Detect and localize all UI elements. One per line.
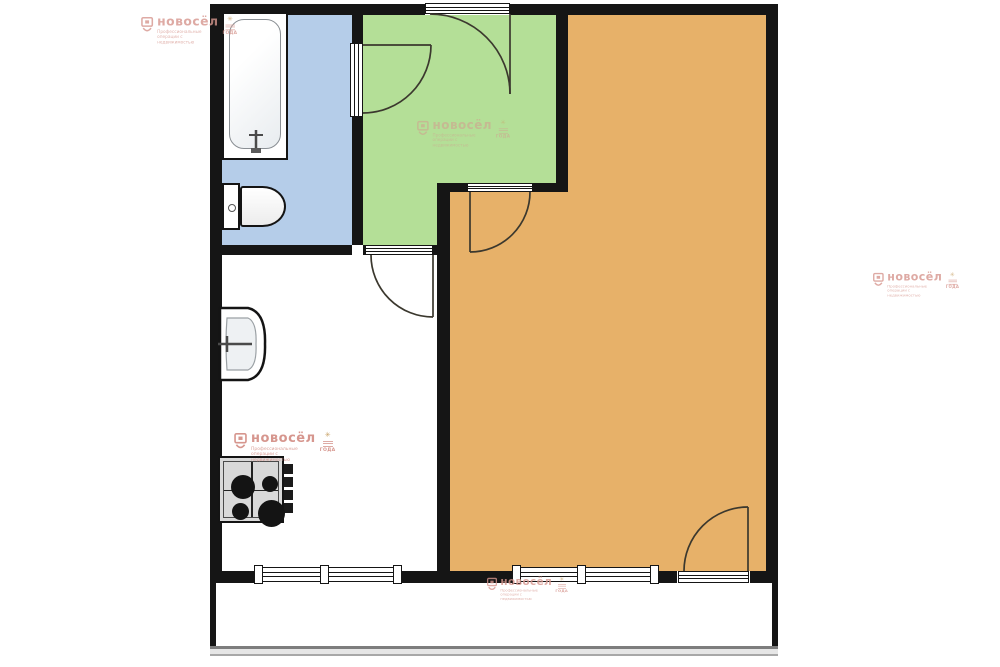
bathtub-faucet-icon [246,126,266,156]
badge-star-icon: ✳ [325,432,331,439]
badge-star-icon: ✳ [500,120,505,126]
wall-right [766,4,778,583]
wall-junction-gap [352,245,363,255]
novosel-logo-icon [872,272,885,289]
window-cap [254,565,263,584]
wall-bottom-1 [210,571,257,583]
watermark-tagline: Профессиональные операции с недвижимость… [500,589,550,602]
badge-star-icon: ✳ [950,272,955,278]
window-cap [650,565,659,584]
wall-top-right [510,4,778,15]
watermark-badge: ✳ ГОДА [556,577,567,594]
watermark-brand: новосёл [251,432,316,445]
balcony-wall-left [210,583,216,648]
novosel-logo-icon [140,16,154,35]
badge-year-label: ГОДА [320,448,336,453]
watermark-kitchen: новосёл Профессиональные операции с недв… [233,432,335,463]
watermark-brand: новосёл [887,272,942,283]
window-divider [577,565,586,584]
window-cap [393,565,402,584]
stove-burner [262,476,278,492]
toilet-flush-button [228,204,236,212]
watermark-top-left: новосёл Профессиональные операции с недв… [140,16,237,46]
toilet-bowl [240,186,286,227]
toilet-tank [222,183,240,230]
entrance-door-sill [425,3,510,14]
watermark-badge: ✳ ГОДА [497,120,510,139]
watermark-badge: ✳ ГОДА [223,16,236,36]
wall-bathroom-bottom [222,245,365,255]
stove-burner [258,500,285,527]
badge-year-label: ГОДА [555,590,568,594]
wall-living-top-left-2 [533,183,568,192]
watermark-badge: ✳ ГОДА [946,272,958,290]
kitchen-door-sill [365,245,433,255]
room-living-extension [450,192,568,571]
wall-living-top-left-1 [437,183,467,192]
stove [218,456,284,523]
watermark-brand: новосёл [157,16,218,28]
badge-star-icon: ✳ [559,577,564,583]
badge-star-icon: ✳ [227,16,233,23]
wall-bottom-3 [658,571,677,583]
stove-burner [231,475,255,499]
balcony-rail [210,646,778,656]
novosel-logo-icon [486,577,498,593]
bathroom-door-sill [350,43,363,117]
wall-kitchen-living [437,192,450,571]
room-hallway-arm [363,183,437,245]
room-living-main [568,15,766,571]
novosel-logo-icon [233,432,248,452]
watermark-tagline: Профессиональные операции с недвижимость… [157,30,216,45]
watermark-tagline: Профессиональные операции с недвижимость… [251,447,313,463]
kitchen-window [255,567,401,582]
balcony-wall-right [772,583,778,648]
wall-hallway-living [556,15,568,192]
window-divider [320,565,329,584]
floor-plan: новосёл Профессиональные операции с недв… [0,0,1000,667]
room-hallway-main [363,15,556,183]
kitchen-sink [218,306,270,382]
living-door-sill [467,183,533,192]
balcony-door-sill [678,571,749,583]
novosel-logo-icon [416,120,430,138]
room-kitchen [222,255,437,571]
badge-year-label: ГОДА [946,286,959,290]
stove-burner [232,503,249,520]
watermark-brand: новосёл [433,120,492,132]
wall-bottom-4 [750,571,778,583]
wall-bathroom-right-upper [352,15,363,43]
wall-bathroom-right-lower [352,117,363,247]
watermark-badge: ✳ ГОДА [321,432,335,453]
watermark-tagline: Профессиональные операции с недвижимость… [433,134,490,149]
badge-year-label: ГОДА [222,31,237,36]
watermark-tagline: Профессиональные операции с недвижимость… [887,285,940,299]
watermark-balcony: новосёл Профессиональные операции с недв… [486,577,567,602]
watermark-brand: новосёл [500,577,552,587]
watermark-hallway: новосёл Профессиональные операции с недв… [416,120,509,149]
badge-year-label: ГОДА [496,135,510,140]
watermark-right: новосёл Профессиональные операции с недв… [872,272,958,298]
stove-knobs [284,464,293,513]
